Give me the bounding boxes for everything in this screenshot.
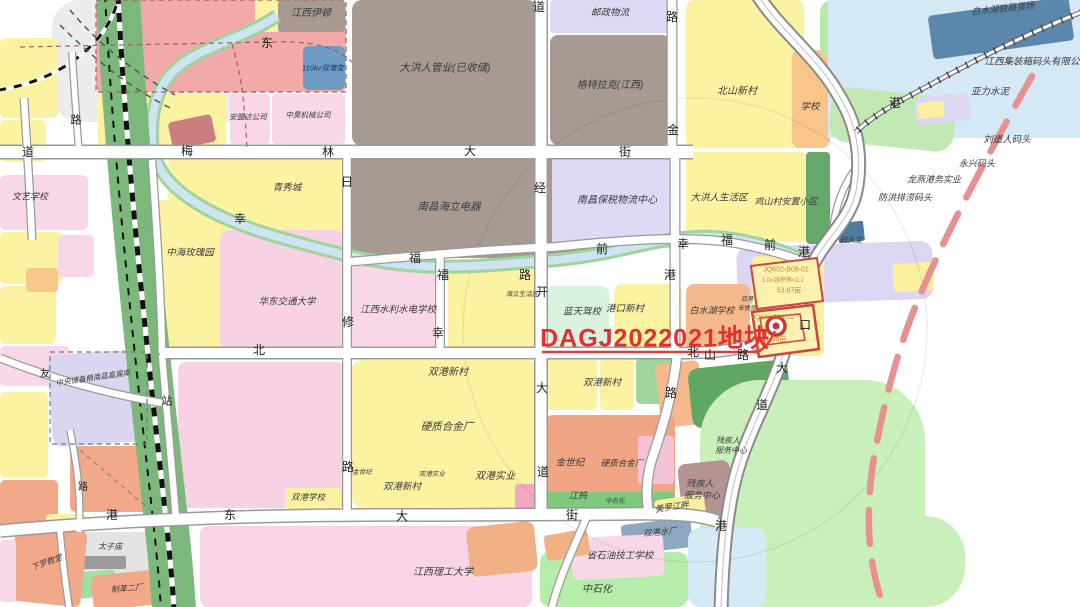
map-label: 白水湖铁路货场 (971, 1, 1035, 17)
map-label: 口 (799, 319, 811, 331)
map-labels-layer: 道路东梅林大街道路金港经开大道日修路幸福路前幸福前港港路北北山路口大道港东大街站… (0, 0, 1080, 607)
map-label: 东 (224, 509, 236, 521)
map-label: 东 (261, 37, 273, 49)
map-label: 中昊机械公司 (286, 111, 331, 119)
map-label: 大 (776, 362, 788, 374)
map-label: 江西水利水电学校 (360, 305, 436, 315)
map-label: 双港 (741, 297, 753, 303)
map-label: 道 (533, 1, 545, 13)
map-label: 路 (71, 116, 82, 127)
map-label: 幸 (432, 327, 444, 339)
map-label: 双港实业 (419, 472, 445, 479)
map-label: 经 (534, 182, 546, 194)
map-label: 53.67亩 (777, 288, 802, 295)
map-label: 开 (536, 286, 548, 298)
map-label: 110kv双港变 (302, 64, 344, 72)
map-label: 南昌保税物流中心 (577, 196, 657, 206)
map-label: 北山新村 (717, 87, 757, 97)
map-label: 道 (756, 399, 768, 411)
map-label: 福 (409, 252, 421, 264)
map-label: 硬质合金厂 (421, 422, 474, 433)
map-label: 金世纪 (352, 470, 372, 477)
map-label: 学校 (800, 102, 819, 112)
map-label: 双港水厂 (643, 526, 678, 537)
map-label: 山 (704, 349, 716, 361)
map-label: 1.0<容积率<2.2 (762, 278, 804, 284)
map-label: 蓝天驾校 (563, 307, 601, 317)
map-label: 江西理工大学 (413, 568, 473, 578)
map-label: 幸 (677, 238, 689, 250)
map-label: 安置房 (738, 306, 756, 312)
map-label: 文艺学校 (12, 193, 48, 202)
map-label: 太子庙 (98, 543, 122, 551)
map-label: 青秀城 (273, 183, 302, 193)
map-label: 双港新村 (383, 482, 421, 492)
map-label: 日 (341, 176, 353, 188)
map-label: 街 (619, 146, 631, 158)
map-label: 江西伊顿 (291, 9, 331, 19)
map-label: 亚力水泥 (971, 87, 1009, 97)
map-label: 大 (464, 145, 476, 157)
map-label: 江钨 (569, 492, 587, 501)
map-label: 39.99亩 (762, 337, 787, 344)
map-label: 安盟达公司 (229, 113, 267, 121)
map-label: 友 (40, 370, 50, 380)
map-label: 幸 (234, 213, 246, 225)
map-label: 梅 (181, 145, 193, 157)
map-label: 福 (721, 234, 733, 246)
map-label: 省石油技工学校 (587, 551, 654, 561)
map-label: 硬质合金厂 (601, 459, 644, 468)
map-label: 南昌海立电器 (418, 202, 481, 213)
map-label: 北 (253, 344, 265, 356)
map-label: 双港学校 (291, 493, 325, 502)
map-label: 前 (596, 243, 608, 255)
map-label: 白水湖学校 (689, 307, 734, 316)
map-label: JQ602-B08-02 (752, 315, 794, 322)
map-label: 美罗江畔 (655, 500, 690, 513)
map-label: 大 (536, 382, 548, 394)
map-label: 中海玫瑰园 (166, 248, 214, 258)
map-label: 港 (798, 246, 810, 258)
map-label: 中石化 (582, 585, 612, 595)
map-label: 路 (665, 387, 677, 399)
map-label: 中石化 (605, 499, 625, 506)
map-label: 码头变 (840, 236, 863, 244)
map-label: 路 (342, 461, 354, 473)
map-label: 道 (537, 466, 549, 478)
map-label: 港 (664, 269, 676, 281)
map-label: 邮政物流 (591, 8, 629, 18)
map-label: 金 (667, 124, 679, 136)
map-label: 双港新村 (583, 378, 621, 388)
map-label: 制革二厂 (111, 584, 144, 595)
map-label: 路 (78, 483, 88, 493)
map-label: 双港实业 (475, 472, 515, 482)
map-label: 服务中心 (684, 492, 720, 501)
map-label: JQ602-B08-01 (763, 267, 809, 274)
map-label: 中央储备粮南昌直属库 (55, 369, 130, 387)
map-label: 刘道人码头 (983, 135, 1031, 145)
map-label: 残疾人 (686, 480, 713, 489)
map-label: 金世纪 (556, 458, 585, 468)
map-label: 路 (519, 269, 531, 281)
map-label: 站 (162, 397, 173, 408)
map-label: 道 (22, 146, 34, 158)
map-label: 下罗教堂 (31, 554, 64, 572)
highlight-parcel-label: DAGJ2022021地块 (540, 327, 770, 352)
map-label: 林 (322, 146, 334, 158)
map-label: 福 (437, 269, 449, 281)
map-label: 大洪人生活区 (690, 193, 747, 203)
map-label: 双港新村 (428, 368, 468, 378)
map-label: 港 (889, 97, 901, 109)
map-label: 华东交通大学 (258, 297, 315, 307)
map-label: 海立生活区 (506, 292, 539, 299)
map-label: 路 (737, 349, 749, 361)
map-label: 前 (764, 239, 776, 251)
map-label: 街 (566, 509, 578, 521)
map-label: 港 (106, 509, 118, 521)
map-label: 永兴码头 (959, 160, 995, 169)
map-canvas: 道路东梅林大街道路金港经开大道日修路幸福路前幸福前港港路北北山路口大道港东大街站… (0, 0, 1080, 607)
map-label: 大 (396, 510, 408, 522)
map-label: 大洪人管业(已收储) (400, 63, 491, 74)
map-label: 残疾人 (716, 437, 740, 445)
map-label: 格特拉克(江西) (577, 81, 644, 91)
map-label: 龙燕港务实业 (907, 176, 961, 185)
map-label: 江西集装箱码头有限公 (984, 57, 1079, 67)
map-label: 服务中心 (715, 447, 747, 455)
map-label: 港 (715, 520, 727, 532)
map-label: 北 (687, 346, 699, 358)
map-label: 防洪排涝码头 (878, 194, 932, 203)
map-label: 港口新村 (606, 304, 644, 314)
map-label: 鸡山村安置小区 (754, 198, 817, 207)
map-label: 路 (666, 11, 678, 23)
map-label: 修 (342, 316, 354, 328)
